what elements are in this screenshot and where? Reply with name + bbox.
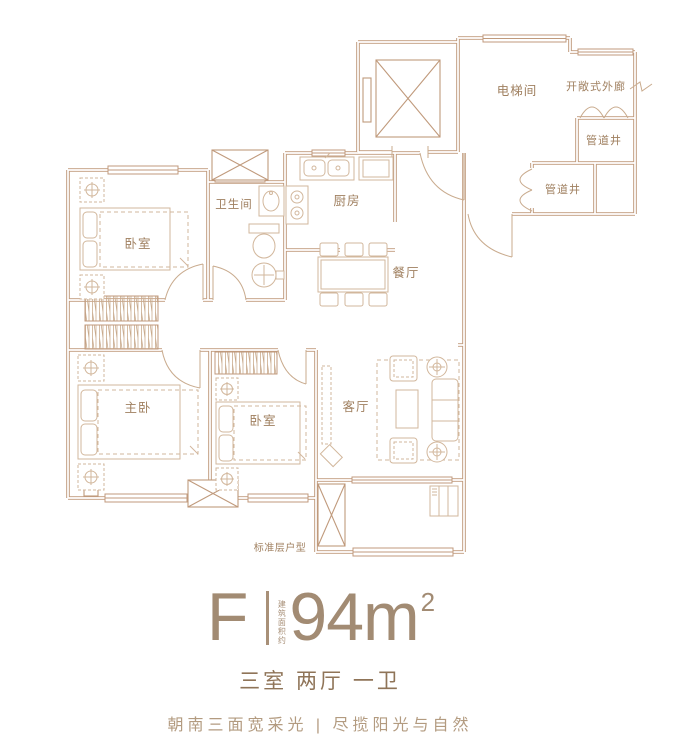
area-headline: F 建筑面积约 94m 2 xyxy=(207,583,433,651)
area-superscript: 2 xyxy=(421,589,435,615)
ac-platform xyxy=(212,150,268,180)
plan-caption: 标准层户型 xyxy=(254,541,307,554)
master-door xyxy=(162,350,200,388)
ac-platform xyxy=(318,484,345,546)
window xyxy=(248,494,308,502)
bedroom-door xyxy=(165,264,203,300)
entry-door xyxy=(420,153,464,200)
room-label-bedroom-top: 卧室 xyxy=(124,236,151,251)
window xyxy=(108,166,178,174)
bedroom2-door xyxy=(278,350,306,384)
window xyxy=(578,49,633,55)
toilet xyxy=(253,234,275,258)
wardrobe xyxy=(215,352,277,374)
room-label-open-corridor: 开敞式外廊 xyxy=(566,79,626,93)
window xyxy=(483,35,566,42)
room-label-master-bedroom: 主卧 xyxy=(124,401,151,415)
pipe-shaft-doors xyxy=(520,169,532,211)
window xyxy=(353,548,453,556)
floor-plan-svg: 卧室 卫生间 厨房 餐厅 电梯间 开敞式外廊 管道井 管道井 主卧 卧室 客厅 … xyxy=(0,0,695,565)
room-label-dining: 餐厅 xyxy=(392,265,419,280)
bed-second-bedroom xyxy=(216,378,306,490)
room-label-pipe-shaft-2: 管道井 xyxy=(545,182,581,196)
bed-master xyxy=(78,355,198,490)
area-value: 94m xyxy=(289,583,418,651)
kitchen-counter xyxy=(286,153,393,224)
elevator-shaft xyxy=(363,60,440,137)
unit-info: F 建筑面积约 94m 2 三室 两厅 一卫 朝南三面宽采光 | 尽揽阳光与自然 xyxy=(0,583,640,735)
room-label-bedroom-second: 卧室 xyxy=(249,413,276,428)
wardrobes xyxy=(85,296,277,374)
room-label-pipe-shaft-1: 管道井 xyxy=(586,133,622,147)
wardrobe xyxy=(85,296,158,321)
sofa-set xyxy=(320,356,459,467)
tagline: 朝南三面宽采光 | 尽揽阳光与自然 xyxy=(167,711,472,735)
balcony-cabinet xyxy=(430,486,458,516)
headline-divider xyxy=(266,591,269,645)
room-label-living: 客厅 xyxy=(342,399,369,414)
wardrobe xyxy=(85,325,158,349)
room-label-bathroom: 卫生间 xyxy=(215,197,253,211)
bathroom-door xyxy=(213,266,246,300)
layout-summary: 三室 两厅 一卫 xyxy=(239,665,401,695)
area-note: 建筑面积约 xyxy=(277,600,285,645)
window xyxy=(352,477,452,483)
bathroom-fixtures xyxy=(249,186,284,287)
unit-code: F xyxy=(207,583,249,651)
floor-plan: 卧室 卫生间 厨房 餐厅 电梯间 开敞式外廊 管道井 管道井 主卧 卧室 客厅 … xyxy=(0,0,695,565)
dining-table xyxy=(318,243,388,306)
hall-door xyxy=(468,214,512,257)
window xyxy=(105,494,187,502)
tv-cabinet xyxy=(322,366,331,444)
room-label-elevator-hall: 电梯间 xyxy=(497,84,538,98)
room-label-kitchen: 厨房 xyxy=(333,193,360,208)
